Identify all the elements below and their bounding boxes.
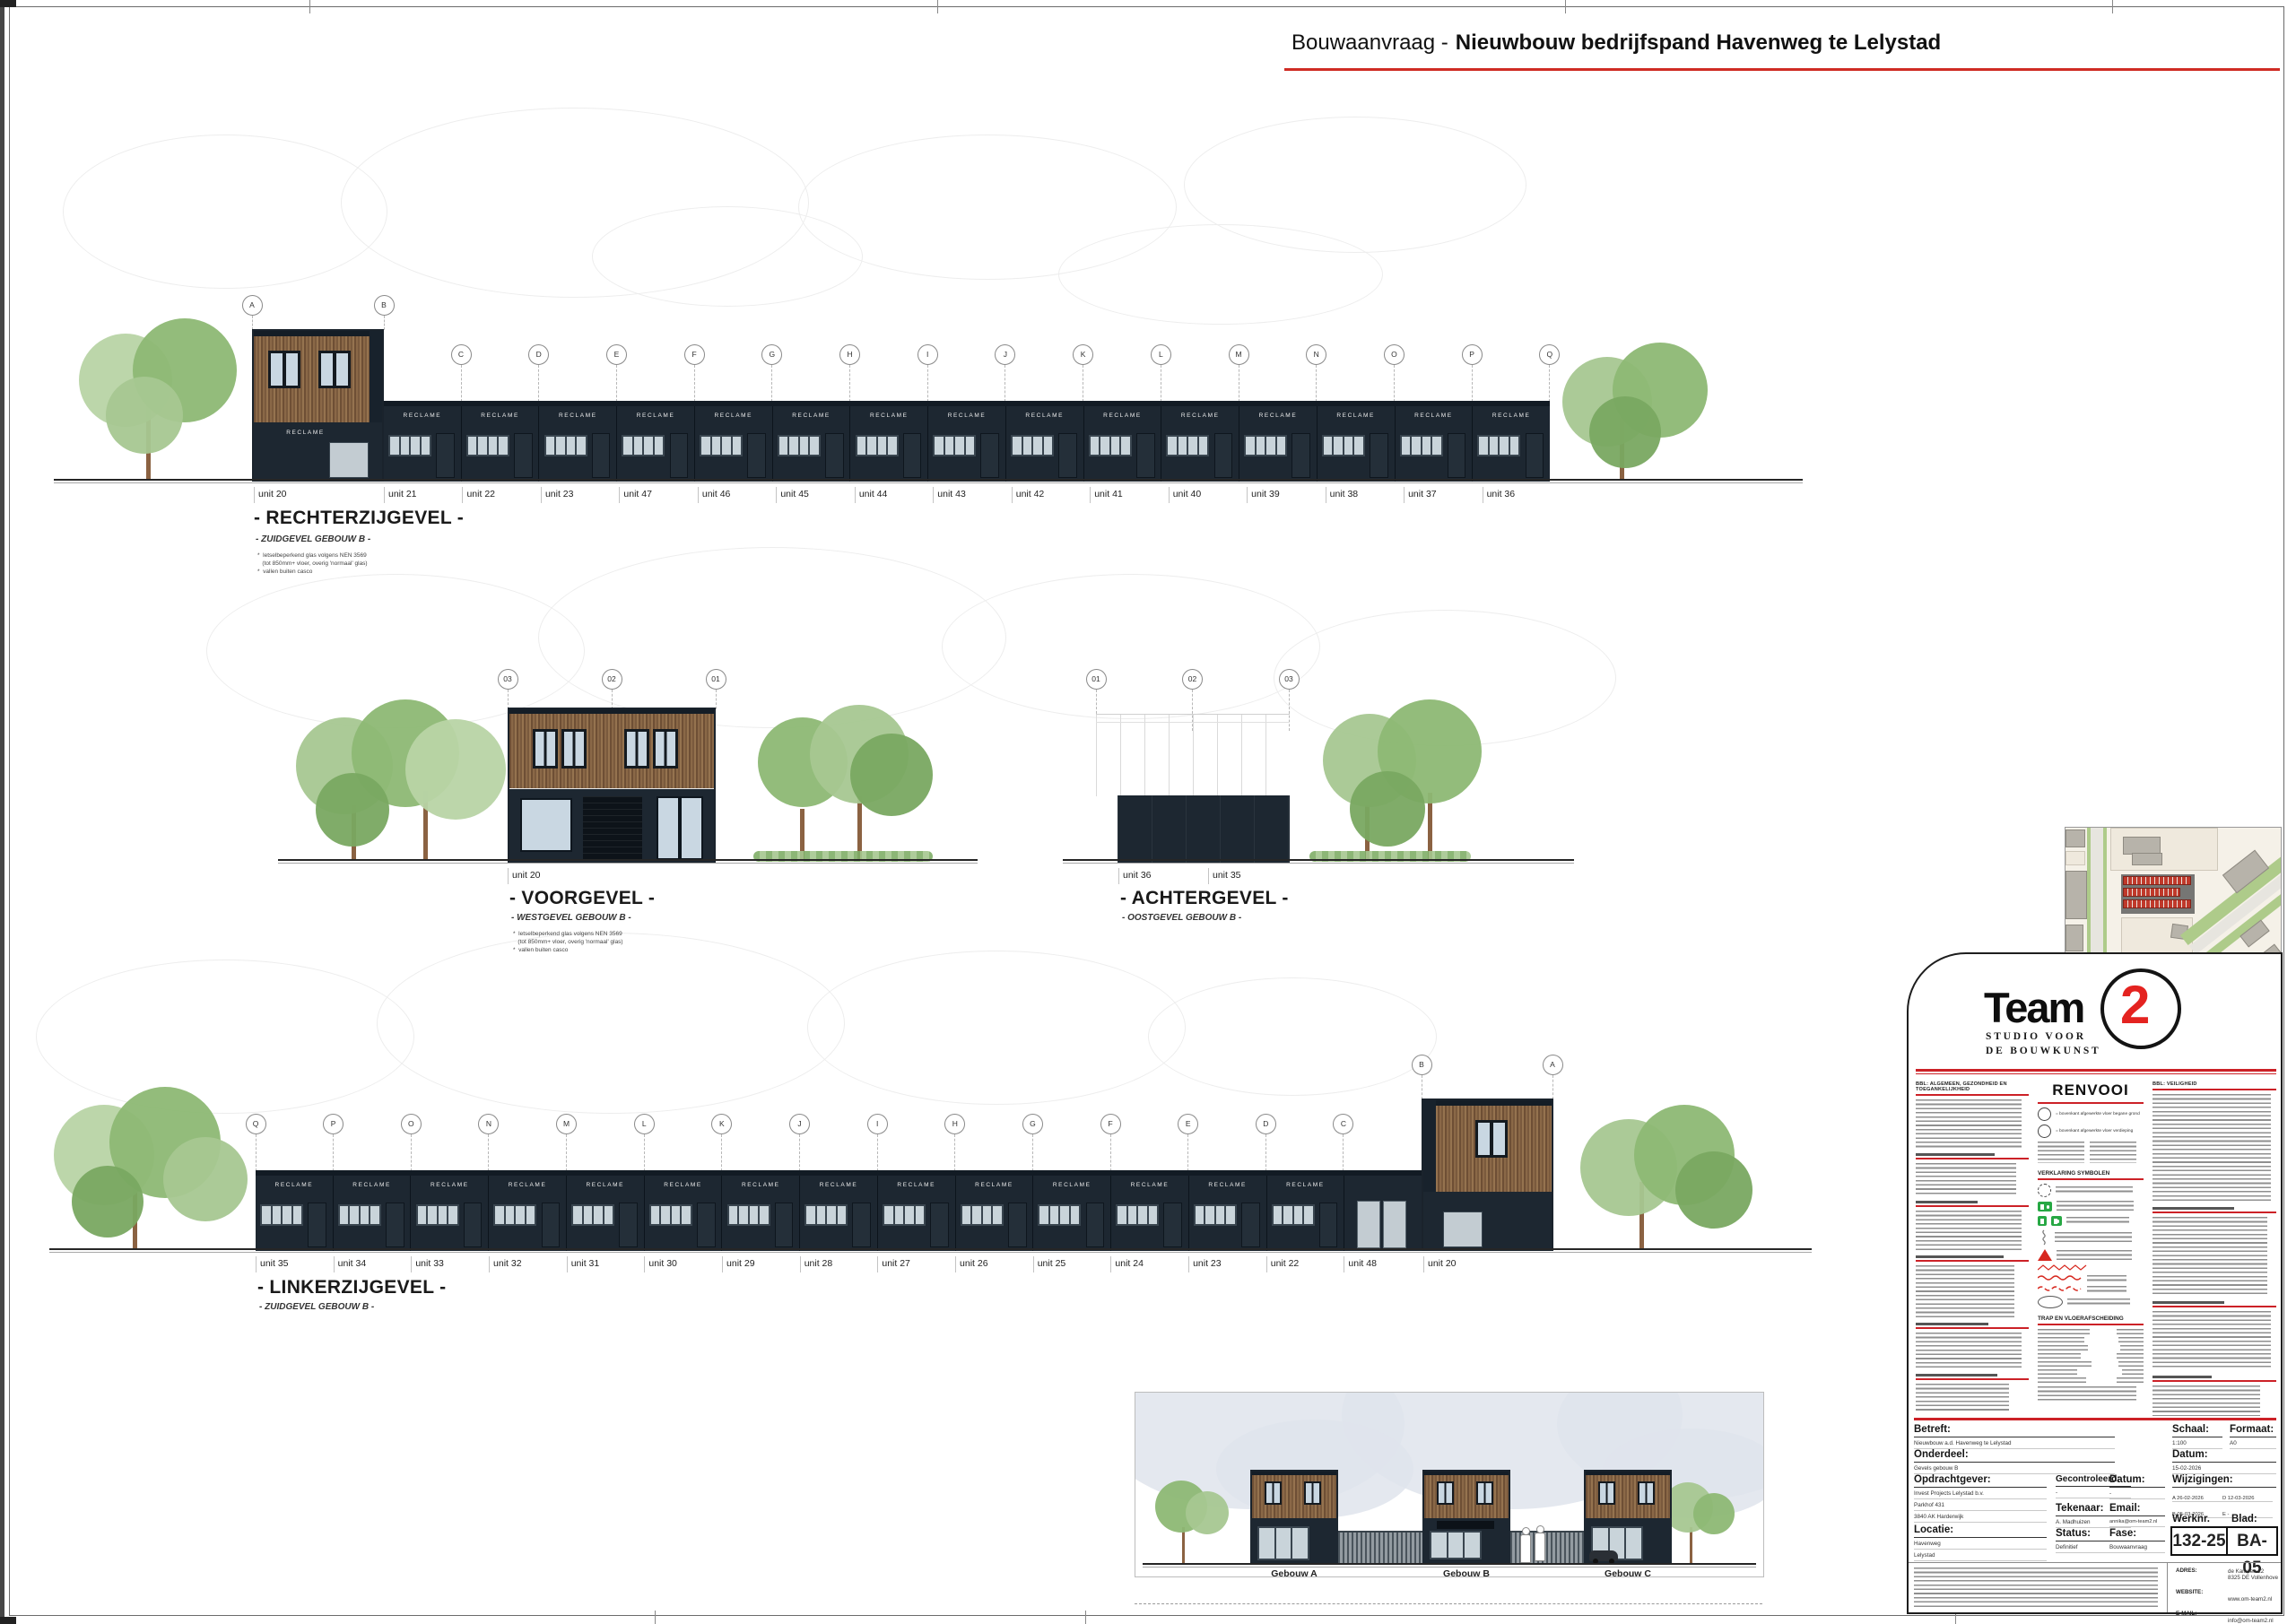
reclame-sign: RECLAME <box>1033 1182 1110 1188</box>
bay-window <box>1400 435 1443 456</box>
reclame-sign: RECLAME <box>334 1182 411 1188</box>
facade-bay: RECLAME <box>721 1176 799 1251</box>
unit-label: unit 46 <box>698 487 776 503</box>
grid-bubble: D <box>528 344 549 365</box>
reclame-sign: RECLAME <box>773 413 850 419</box>
grid-leader <box>1110 1134 1111 1171</box>
bay-door <box>1526 433 1544 478</box>
unit-label: unit 31 <box>567 1256 645 1272</box>
grid-leader <box>1032 1134 1033 1171</box>
peil-text: = bovenkant afgewerkte vloer begane gron… <box>2056 1112 2140 1116</box>
grid-bubble: 02 <box>1182 669 1203 690</box>
unit-label: unit 32 <box>489 1256 567 1272</box>
unit-label: unit 28 <box>800 1256 878 1272</box>
title-underline <box>1284 68 2280 71</box>
grid-leader <box>566 1134 567 1171</box>
unit-label: unit 30 <box>644 1256 722 1272</box>
overview-panel: Gebouw A Gebouw B Gebouw C <box>1135 1392 1764 1577</box>
ground-line <box>278 859 978 864</box>
mini-building-b: Gebouw B <box>1422 1470 1510 1563</box>
bay-window <box>260 1204 303 1226</box>
fold-mark <box>1565 0 1566 13</box>
grid-leader <box>1552 1075 1553 1099</box>
field-fase: Fase: Bouwaanvraag <box>2109 1528 2165 1553</box>
reclame-sign: RECLAME <box>256 1182 333 1188</box>
bay-window <box>804 1204 848 1226</box>
bay-door <box>542 1203 561 1247</box>
ground-line <box>1063 859 1574 864</box>
fold-mark <box>937 0 938 13</box>
double-door <box>1383 1201 1406 1248</box>
unit-row: unit 21unit 22unit 23unit 47unit 46unit … <box>384 487 1561 503</box>
head-section: RECLAME <box>252 329 384 482</box>
facade-bay: RECLAME <box>488 1176 566 1251</box>
grid-leader <box>721 1134 722 1171</box>
sheet-title: Bouwaanvraag -Nieuwbouw bedrijfspand Hav… <box>1291 30 1941 56</box>
facade-bay: RECLAME <box>333 1176 411 1251</box>
cloud-sketch <box>36 960 414 1114</box>
elevation-subtitle: - WESTGEVEL GEBOUW B - <box>511 913 631 923</box>
bay-door <box>825 433 844 478</box>
reclame-sign: RECLAME <box>462 413 539 419</box>
grid-bubble: K <box>1073 344 1093 365</box>
field-onderdeel: Onderdeel: Gevels gebouw B <box>1914 1449 2115 1474</box>
bay-door <box>464 1203 483 1247</box>
reclame-sign: RECLAME <box>1006 413 1083 419</box>
logo-digit: 2 <box>2120 974 2150 1036</box>
facade-bay: RECLAME <box>644 1176 722 1251</box>
grid-leader <box>461 365 462 402</box>
unit-label: unit 35 <box>1208 868 1298 884</box>
bay-door <box>1241 1203 1260 1247</box>
unit-label: unit 33 <box>411 1256 489 1272</box>
bay-door <box>1214 433 1233 478</box>
facade-bay: RECLAME <box>538 406 616 482</box>
reclame-sign: RECLAME <box>539 413 616 419</box>
bay-door <box>514 433 533 478</box>
fence <box>1338 1531 1422 1565</box>
window <box>520 798 572 852</box>
grid-row-high: AB <box>252 295 384 330</box>
bay-door <box>1163 1203 1182 1247</box>
roof-band <box>254 331 382 336</box>
reclame-sign: RECLAME <box>567 1182 644 1188</box>
brandkraan-symbol <box>2038 1229 2050 1246</box>
facade-bay: RECLAME <box>1005 406 1083 482</box>
window <box>1475 1120 1508 1158</box>
grid-bubble: P <box>323 1114 344 1134</box>
unit-label: unit 41 <box>1090 487 1168 503</box>
grid-bubble: M <box>1229 344 1249 365</box>
facade-bay: RECLAME <box>1161 406 1239 482</box>
logo-tagline: DE BOUWKUNST <box>1986 1046 2101 1056</box>
unit-label: unit 23 <box>541 487 619 503</box>
unit-row: unit 35unit 34unit 33unit 32unit 31unit … <box>256 1256 1422 1272</box>
wavy-line-symbol <box>2038 1274 2083 1281</box>
grid-bubble: G <box>761 344 782 365</box>
grid-bubble: D <box>1256 1114 1276 1134</box>
bay-window <box>1244 435 1287 456</box>
grid-leader <box>771 365 772 402</box>
building-label: Gebouw C <box>1584 1568 1672 1577</box>
grid-bubble: N <box>478 1114 499 1134</box>
car <box>1589 1550 1618 1561</box>
bay-door <box>903 433 922 478</box>
bay-window <box>883 1204 926 1226</box>
ground-line <box>1143 1563 1756 1568</box>
grid-leader <box>411 1134 412 1171</box>
facade-bay: RECLAME <box>849 406 927 482</box>
reclame-sign: RECLAME <box>229 430 382 436</box>
bay-door <box>775 1203 794 1247</box>
sheet-title-prefix: Bouwaanvraag - <box>1291 30 1448 55</box>
grid-leader <box>927 365 928 402</box>
grid-row-low: CDEFGHIJKLMNOPQ <box>461 344 1550 402</box>
grid-bubble: 03 <box>1279 669 1300 690</box>
grid-bubble: K <box>711 1114 732 1134</box>
plinth <box>509 789 714 862</box>
grid-leader <box>1187 1134 1188 1171</box>
grid-leader <box>508 690 509 709</box>
reclame-sign: RECLAME <box>1189 1182 1266 1188</box>
sheet-title-main: Nieuwbouw bedrijfspand Havenweg te Lelys… <box>1456 30 1941 55</box>
grid-row: 030201 <box>508 669 716 709</box>
facade-row: RECLAMERECLAMERECLAMERECLAMERECLAMERECLA… <box>256 1170 1422 1251</box>
unit-label: unit 39 <box>1247 487 1325 503</box>
window <box>318 351 351 388</box>
achtergevel-building <box>1118 795 1290 864</box>
red-rule <box>1916 1069 2276 1072</box>
field-datum: Datum: 15-02-2026 <box>2172 1449 2276 1474</box>
reclame-sign: RECLAME <box>645 1182 722 1188</box>
fold-mark <box>309 0 310 13</box>
grid-bubble: P <box>1462 344 1483 365</box>
unit-label: unit 42 <box>1012 487 1090 503</box>
grid-bubble: E <box>1178 1114 1198 1134</box>
symbols-heading: VERKLARING SYMBOLEN <box>2038 1170 2144 1177</box>
reclame-sign: RECLAME <box>617 413 694 419</box>
facade-bay: RECLAME <box>1317 406 1395 482</box>
window <box>533 729 558 769</box>
ground-line <box>49 1248 1812 1253</box>
reclame-sign: RECLAME <box>850 413 927 419</box>
person <box>1519 1527 1531 1563</box>
legend-col-veiligheid: BBL: VEILIGHEID <box>2152 1081 2276 1416</box>
grid-bubble: 03 <box>498 669 518 690</box>
glass-door <box>657 796 703 860</box>
facade-bay <box>1344 1176 1422 1251</box>
exit-sign-symbol <box>2038 1202 2052 1211</box>
symbol <box>2038 1184 2051 1197</box>
reclame-sign: RECLAME <box>1084 413 1161 419</box>
voorgevel-building <box>508 708 716 864</box>
grid-leader <box>1161 365 1161 402</box>
grid-bubble: Q <box>246 1114 266 1134</box>
reclame-sign: RECLAME <box>411 1182 488 1188</box>
reclame-sign: RECLAME <box>1161 413 1239 419</box>
bay-door <box>1291 433 1310 478</box>
elevation-subtitle: - ZUIDGEVEL GEBOUW B - <box>256 534 370 544</box>
entrance-door <box>329 442 369 478</box>
grid-leader <box>384 316 385 330</box>
grid-bubble: H <box>944 1114 965 1134</box>
reclame-sign: RECLAME <box>1473 413 1550 419</box>
logo-tagline: STUDIO VOOR <box>1986 1031 2086 1042</box>
bay-window <box>622 435 665 456</box>
reclame-sign: RECLAME <box>800 1182 877 1188</box>
field-datum-check: Datum: - <box>2109 1474 2165 1499</box>
reclame-sign: RECLAME <box>489 1182 566 1188</box>
unit-label: unit 45 <box>776 487 854 503</box>
disclaimer-fineprint <box>1914 1568 2158 1607</box>
grid-leader <box>716 690 717 709</box>
bay-window <box>700 435 743 456</box>
bay-window <box>388 435 431 456</box>
contact-block: ADRES:de Kampen 228325 DE Vollenhove WEB… <box>2176 1568 2276 1624</box>
bay-door <box>386 1203 404 1247</box>
reclame-sign: RECLAME <box>1239 413 1317 419</box>
unit-label: unit 20 <box>254 487 287 503</box>
bay-window <box>1272 1204 1315 1226</box>
unit-label: unit 23 <box>1188 1256 1266 1272</box>
unit-label: unit 34 <box>334 1256 412 1272</box>
facade-bay: RECLAME <box>1472 406 1550 482</box>
facade-bay: RECLAME <box>616 406 694 482</box>
plinth: RECLAME <box>254 422 382 480</box>
reclame-sign: RECLAME <box>1267 1182 1344 1188</box>
bay-door <box>852 1203 871 1247</box>
bay-window <box>1322 435 1365 456</box>
building-label: Gebouw A <box>1250 1568 1338 1577</box>
grid-leader <box>1472 365 1473 402</box>
cloud-sketch <box>1148 977 1437 1096</box>
unit-row: unit 36unit 35 <box>1118 868 1298 884</box>
facade-bay: RECLAME <box>877 1176 955 1251</box>
wood-facade <box>509 709 714 791</box>
elevation-notes: * letselbeperkend glas volgens NEN 3569 … <box>257 551 368 576</box>
grid-leader <box>333 1134 334 1171</box>
grid-bubble: H <box>839 344 860 365</box>
field-betreft: Betreft: Nieuwbouw a.d. Havenweg te Lely… <box>1914 1424 2115 1449</box>
facade-bay: RECLAME <box>384 406 461 482</box>
unit-label: unit 26 <box>955 1256 1033 1272</box>
minuten-symbol <box>2038 1296 2063 1308</box>
fold-mark <box>655 1611 656 1624</box>
garage-door <box>583 796 642 860</box>
sheet-edge <box>0 0 4 1624</box>
unit-label: unit 22 <box>1266 1256 1344 1272</box>
legend-heading: BBL: ALGEMEEN, GEZONDHEID EN TOEGANKELIJ… <box>1916 1081 2029 1092</box>
reclame-sign: RECLAME <box>384 413 461 419</box>
wavy-line-symbol <box>2038 1285 2083 1292</box>
facade-bay: RECLAME <box>1032 1176 1110 1251</box>
ground-line <box>54 479 1803 483</box>
unit-label: unit 47 <box>619 487 697 503</box>
bay-window <box>544 435 587 456</box>
fold-mark <box>1085 1611 1086 1624</box>
field-blad: Blad: <box>2231 1514 2276 1526</box>
unit-label: unit 48 <box>1344 1256 1422 1272</box>
facade-bay: RECLAME <box>1266 1176 1344 1251</box>
grid-bubble: 01 <box>1086 669 1107 690</box>
blusser-symbol <box>2038 1249 2052 1261</box>
facade-bay: RECLAME <box>461 406 539 482</box>
bay-window <box>571 1204 614 1226</box>
bay-window <box>1038 1204 1081 1226</box>
grid-leader <box>612 690 613 709</box>
cloud-sketch <box>807 951 1186 1105</box>
bay-window <box>778 435 821 456</box>
divider <box>1909 1562 2281 1563</box>
legend-col-algemeen: BBL: ALGEMEEN, GEZONDHEID EN TOEGANKELIJ… <box>1916 1081 2029 1411</box>
grid-bubble: J <box>789 1114 810 1134</box>
bay-window <box>1089 435 1132 456</box>
reclame-sign: RECLAME <box>695 413 772 419</box>
bay-window <box>1116 1204 1159 1226</box>
grid-bubble: B <box>374 295 395 316</box>
roof-band <box>1423 1100 1552 1106</box>
grid-leader <box>616 365 617 402</box>
exit-sign-symbol <box>2051 1216 2062 1226</box>
fold-dash <box>1135 1603 1762 1604</box>
unit-label: unit 36 <box>1118 868 1208 884</box>
unit-label: unit 25 <box>1033 1256 1111 1272</box>
grid-bubble: M <box>556 1114 577 1134</box>
elevation-title: - LINKERZIJGEVEL - <box>257 1277 446 1298</box>
reclame-sign: RECLAME <box>878 1182 955 1188</box>
grid-bubble: J <box>995 344 1015 365</box>
trap-heading: TRAP EN VLOERAFSCHEIDING <box>2038 1316 2144 1322</box>
elevation-title: - VOORGEVEL - <box>509 888 655 909</box>
grid-leader <box>1549 365 1550 402</box>
facade-bay: RECLAME <box>256 1176 333 1251</box>
fence <box>1096 714 1290 796</box>
cloud-sketch <box>377 933 845 1114</box>
bay-window <box>493 1204 536 1226</box>
bay-door <box>747 433 766 478</box>
bay-window <box>856 435 899 456</box>
bay-door <box>1086 1203 1105 1247</box>
unit-label: unit 37 <box>1404 487 1482 503</box>
elevation-title: - RECHTERZIJGEVEL - <box>254 508 464 529</box>
grid-bubble: 02 <box>602 669 622 690</box>
bay-window <box>1194 1204 1237 1226</box>
bay-door <box>436 433 455 478</box>
grid-bubble: 01 <box>706 669 726 690</box>
bay-door <box>1008 1203 1027 1247</box>
unit-label: unit 20 <box>508 868 541 884</box>
field-opdrachtgever: Opdrachtgever: Invest Projects Lelystad … <box>1914 1474 2047 1523</box>
facade-bay: RECLAME <box>566 1176 644 1251</box>
reclame-sign: RECLAME <box>1396 413 1473 419</box>
cloud-sketch <box>1058 224 1383 325</box>
field-werknr: Werknr. <box>2172 1514 2222 1526</box>
unit-label: unit 43 <box>933 487 1011 503</box>
facade-bay: RECLAME <box>955 1176 1033 1251</box>
bay-window <box>416 1204 459 1226</box>
bay-door <box>1319 1203 1338 1247</box>
bay-window <box>1477 435 1520 456</box>
unit-label: unit 35 <box>256 1256 334 1272</box>
reclame-sign: RECLAME <box>956 1182 1033 1188</box>
drawing-sheet: Bouwaanvraag -Nieuwbouw bedrijfspand Hav… <box>0 0 2296 1624</box>
grid-leader <box>1239 365 1239 402</box>
unit-label: unit 20 <box>1423 1256 1457 1272</box>
grid-leader <box>1343 1134 1344 1171</box>
grid-leader <box>1083 365 1083 402</box>
corner-mark <box>0 1617 16 1624</box>
grid-leader <box>256 1134 257 1171</box>
entrance-door <box>1443 1211 1483 1247</box>
unit-label: unit 36 <box>1483 487 1561 503</box>
facade-row: RECLAMERECLAMERECLAMERECLAMERECLAMERECLA… <box>384 401 1550 482</box>
reclame-sign: RECLAME <box>1318 413 1395 419</box>
red-rule <box>1914 1418 2276 1420</box>
grid-leader <box>877 1134 878 1171</box>
facade-bay: RECLAME <box>1188 1176 1266 1251</box>
reclame-sign: RECLAME <box>928 413 1005 419</box>
grid-bubble: A <box>242 295 263 316</box>
grid-bubble: A <box>1543 1055 1563 1075</box>
grid-leader <box>1394 365 1395 402</box>
site-map <box>2065 827 2282 968</box>
mini-building-c: Gebouw C <box>1584 1470 1672 1563</box>
bay-door <box>697 1203 716 1247</box>
bay-window <box>1166 435 1209 456</box>
bay-door <box>980 433 999 478</box>
field-locatie: Locatie: Havenweg Lelystad <box>1914 1524 2047 1561</box>
bay-window <box>727 1204 770 1226</box>
unit-label: unit 29 <box>722 1256 800 1272</box>
reclame-sign: RECLAME <box>722 1182 799 1188</box>
window <box>653 729 678 769</box>
facade-bay: RECLAME <box>1395 406 1473 482</box>
mini-building-a: Gebouw A <box>1250 1470 1338 1563</box>
legend-heading: BBL: VEILIGHEID <box>2152 1081 2276 1087</box>
unit-label: unit 40 <box>1169 487 1247 503</box>
bay-window <box>961 1204 1004 1226</box>
grid-row-low: QPONMLKJIHGFEDC <box>256 1114 1344 1171</box>
bay-door <box>1136 433 1155 478</box>
grid-bubble: O <box>1384 344 1405 365</box>
grid-leader <box>1422 1075 1422 1099</box>
grid-leader <box>252 316 253 330</box>
facade-bay: RECLAME <box>1083 406 1161 482</box>
bay-door <box>930 1203 949 1247</box>
grid-bubble: I <box>918 344 938 365</box>
werknr-value: 132-25 <box>2170 1526 2228 1556</box>
grid-leader <box>694 365 695 402</box>
building-label: Gebouw B <box>1422 1568 1510 1577</box>
window <box>268 351 300 388</box>
peil-symbol <box>2038 1125 2051 1138</box>
grid-row-high: BA <box>1422 1055 1552 1099</box>
grid-leader <box>644 1134 645 1171</box>
grid-leader <box>488 1134 489 1171</box>
grid-bubble: L <box>634 1114 655 1134</box>
grid-bubble: E <box>606 344 627 365</box>
grid-bubble: F <box>1100 1114 1121 1134</box>
legend-col-renvooi: RENVOOI = bovenkant afgewerkte vloer beg… <box>2038 1081 2144 1403</box>
elevation-subtitle: - ZUIDGEVEL GEBOUW B - <box>259 1302 374 1312</box>
unit-label: unit 27 <box>877 1256 955 1272</box>
bay-door <box>592 433 611 478</box>
facade-bay: RECLAME <box>410 1176 488 1251</box>
elevation-subtitle: - OOSTGEVEL GEBOUW B - <box>1122 913 1241 923</box>
corner-mark <box>0 0 16 7</box>
field-email: Email: annika@om-team2.nl <box>2109 1503 2165 1527</box>
blad-value: BA-05 <box>2228 1526 2278 1556</box>
